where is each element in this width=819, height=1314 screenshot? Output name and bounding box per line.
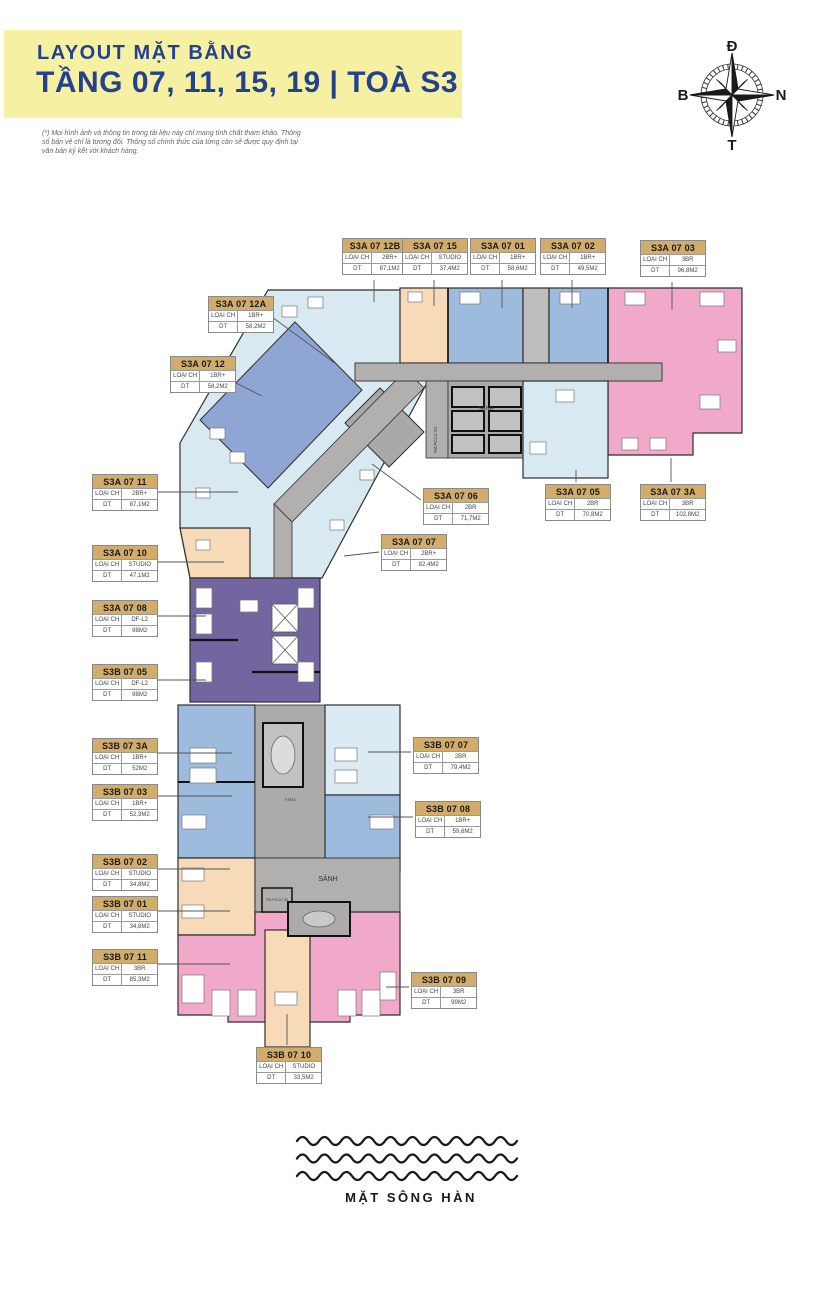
- river-waves: [297, 1137, 517, 1180]
- unit-area-row: DT49,5M2: [541, 263, 605, 274]
- unit-id: S3A 07 01: [471, 239, 535, 252]
- unit-id: S3A 07 12B: [343, 239, 407, 252]
- unit-id: S3B 07 09: [412, 973, 476, 986]
- unit-area-row: DT96,8M2: [641, 265, 705, 276]
- unit-type-row: LOẠI CH3BR: [412, 986, 476, 997]
- label-s3a-07-08: S3A 07 08LOẠI CHDF-L2DT98M2: [92, 600, 158, 637]
- label-s3a-07-07: S3A 07 07LOẠI CH2BR+DT82,4M2: [381, 534, 447, 571]
- unit-s3a-01: [448, 288, 523, 363]
- unit-id: S3B 07 03: [93, 785, 157, 798]
- label-s3b-07-11: S3B 07 11LOẠI CH3BRDT85,3M2: [92, 949, 158, 986]
- label-s3b-07-05: S3B 07 05LOẠI CHDF-L2DT98M2: [92, 664, 158, 701]
- label-s3a-07-3a: S3A 07 3ALOẠI CH3BRDT102,8M2: [640, 484, 706, 521]
- unit-area-row: DT102,8M2: [641, 509, 705, 520]
- unit-id: S3B 07 11: [93, 950, 157, 963]
- unit-type-row: LOẠI CH2BR+: [343, 252, 407, 263]
- unit-id: S3B 07 08: [416, 802, 480, 815]
- unit-type-row: LOẠI CH1BR+: [93, 752, 157, 763]
- unit-type-row: LOẠI CHDF-L2: [93, 678, 157, 689]
- unit-id: S3A 07 15: [403, 239, 467, 252]
- label-s3b-07-08: S3B 07 08LOẠI CH1BR+DT59,6M2: [415, 801, 481, 838]
- label-s3b-07-02: S3B 07 02LOẠI CHSTUDIODT34,8M2: [92, 854, 158, 891]
- unit-type-row: LOẠI CHSTUDIO: [93, 910, 157, 921]
- compass: Đ B N T: [678, 38, 787, 154]
- unit-area-row: DT98M2: [93, 625, 157, 636]
- unit-area-row: DT70,8M2: [546, 509, 610, 520]
- unit-type-row: LOẠI CH2BR: [546, 498, 610, 509]
- unit-area-row: DT79,4M2: [414, 762, 478, 773]
- title-banner: LAYOUT MẶT BẰNG TẦNG 07, 11, 15, 19 | TO…: [4, 30, 462, 118]
- trash-room-label: F.RÁC: [285, 797, 297, 802]
- label-s3a-07-12a: S3A 07 12ALOẠI CH1BR+DT58,2M2: [208, 296, 274, 333]
- label-s3a-07-06: S3A 07 06LOẠI CH2BRDT71,7M2: [423, 488, 489, 525]
- lobby-label-bottom: SẢNH: [318, 874, 337, 883]
- unit-id: S3B 07 05: [93, 665, 157, 678]
- brochure-page: Đ B N T: [0, 0, 819, 1314]
- unit-id: S3B 07 02: [93, 855, 157, 868]
- unit-type-row: LOẠI CH1BR+: [471, 252, 535, 263]
- compass-letter-bottom: T: [727, 137, 736, 154]
- unit-area-row: DT99M2: [412, 997, 476, 1008]
- unit-type-row: LOẠI CH2BR+: [382, 548, 446, 559]
- unit-type-row: LOẠI CHDF-L2: [93, 614, 157, 625]
- unit-type-row: LOẠI CHSTUDIO: [257, 1061, 321, 1072]
- unit-area-row: DT58,6M2: [471, 263, 535, 274]
- label-s3a-07-01: S3A 07 01LOẠI CH1BR+DT58,6M2: [470, 238, 536, 275]
- unit-area-row: DT71,7M2: [424, 513, 488, 524]
- unit-id: S3A 07 07: [382, 535, 446, 548]
- unit-id: S3B 07 07: [414, 738, 478, 751]
- unit-id: S3B 07 01: [93, 897, 157, 910]
- unit-area-row: DT34,8M2: [93, 879, 157, 890]
- unit-area-row: DT82,4M2: [382, 559, 446, 570]
- unit-type-row: LOẠI CH2BR+: [93, 488, 157, 499]
- unit-area-row: DT37,4M2: [403, 263, 467, 274]
- river-label: MẶT SÔNG HÀN: [290, 1190, 532, 1205]
- unit-type-row: LOẠI CHSTUDIO: [93, 559, 157, 570]
- floor-plan: SẢNH TM.PCCC 01 SẢNH TM.PCCC 02 F.RÁC: [178, 288, 742, 1047]
- unit-type-row: LOẠI CH1BR+: [93, 798, 157, 809]
- unit-type-row: LOẠI CH3BR: [641, 498, 705, 509]
- label-s3b-07-01: S3B 07 01LOẠI CHSTUDIODT34,8M2: [92, 896, 158, 933]
- label-s3b-07-07: S3B 07 07LOẠI CH2BRDT79,4M2: [413, 737, 479, 774]
- unit-area-row: DT87,1M2: [343, 263, 407, 274]
- fire-room-label-top: TM.PCCC 01: [433, 426, 438, 453]
- label-s3a-07-10: S3A 07 10LOẠI CHSTUDIODT47,1M2: [92, 545, 158, 582]
- unit-id: S3A 07 03: [641, 241, 705, 254]
- floor-plan-canvas: Đ B N T: [0, 0, 819, 1314]
- unit-id: S3B 07 3A: [93, 739, 157, 752]
- unit-type-row: LOẠI CH2BR: [424, 502, 488, 513]
- label-s3b-07-10: S3B 07 10LOẠI CHSTUDIODT33,5M2: [256, 1047, 322, 1084]
- unit-s3b-10: [265, 930, 310, 1047]
- unit-id: S3A 07 12: [171, 357, 235, 370]
- unit-type-row: LOẠI CH3BR: [641, 254, 705, 265]
- label-s3a-07-15: S3A 07 15LOẠI CHSTUDIODT37,4M2: [402, 238, 468, 275]
- title-line-1: LAYOUT MẶT BẰNG: [37, 42, 253, 65]
- unit-id: S3A 07 02: [541, 239, 605, 252]
- corridor-top: [355, 363, 662, 381]
- unit-area-row: DT59,6M2: [416, 826, 480, 837]
- unit-area-row: DT47,1M2: [93, 570, 157, 581]
- label-s3a-07-12b: S3A 07 12BLOẠI CH2BR+DT87,1M2: [342, 238, 408, 275]
- unit-s3a-15: [400, 288, 448, 363]
- unit-type-row: LOẠI CH1BR+: [209, 310, 273, 321]
- lobby-label-top: SẢNH: [478, 405, 493, 412]
- unit-area-row: DT34,8M2: [93, 921, 157, 932]
- unit-area-row: DT58,2M2: [209, 321, 273, 332]
- unit-type-row: LOẠI CH2BR: [414, 751, 478, 762]
- unit-type-row: LOẠI CHSTUDIO: [93, 868, 157, 879]
- unit-id: S3B 07 10: [257, 1048, 321, 1061]
- unit-area-row: DT52M2: [93, 763, 157, 774]
- disclaimer-text: (*) Mọi hình ảnh và thông tin trong tài …: [42, 129, 310, 156]
- compass-letter-top: Đ: [727, 38, 738, 55]
- unit-id: S3A 07 12A: [209, 297, 273, 310]
- unit-area-row: DT85,3M2: [93, 974, 157, 985]
- unit-type-row: LOẠI CH1BR+: [171, 370, 235, 381]
- unit-id: S3A 07 11: [93, 475, 157, 488]
- title-line-2: TẦNG 07, 11, 15, 19 | TOÀ S3: [36, 66, 458, 100]
- compass-letter-right: N: [776, 87, 787, 104]
- label-s3b-07-03: S3B 07 03LOẠI CH1BR+DT52,3M2: [92, 784, 158, 821]
- label-s3b-07-3a: S3B 07 3ALOẠI CH1BR+DT52M2: [92, 738, 158, 775]
- unit-type-row: LOẠI CH1BR+: [541, 252, 605, 263]
- unit-area-row: DT33,5M2: [257, 1072, 321, 1083]
- label-s3a-07-02: S3A 07 02LOẠI CH1BR+DT49,5M2: [540, 238, 606, 275]
- fire-room-label-bottom: TM.PCCC 02: [266, 898, 289, 902]
- unit-id: S3A 07 3A: [641, 485, 705, 498]
- unit-type-row: LOẠI CH1BR+: [416, 815, 480, 826]
- unit-s3a-10: [180, 528, 250, 578]
- unit-id: S3A 07 06: [424, 489, 488, 502]
- label-s3a-07-05: S3A 07 05LOẠI CH2BRDT70,8M2: [545, 484, 611, 521]
- unit-id: S3A 07 08: [93, 601, 157, 614]
- unit-area-row: DT58,2M2: [171, 381, 235, 392]
- unit-type-row: LOẠI CH3BR: [93, 963, 157, 974]
- compass-letter-left: B: [678, 87, 689, 104]
- label-s3b-07-09: S3B 07 09LOẠI CH3BRDT99M2: [411, 972, 477, 1009]
- unit-area-row: DT52,3M2: [93, 809, 157, 820]
- label-s3a-07-03: S3A 07 03LOẠI CH3BRDT96,8M2: [640, 240, 706, 277]
- unit-area-row: DT98M2: [93, 689, 157, 700]
- unit-id: S3A 07 05: [546, 485, 610, 498]
- label-s3a-07-11: S3A 07 11LOẠI CH2BR+DT87,1M2: [92, 474, 158, 511]
- unit-type-row: LOẠI CHSTUDIO: [403, 252, 467, 263]
- stairs-top: [523, 288, 549, 363]
- label-s3a-07-12: S3A 07 12LOẠI CH1BR+DT58,2M2: [170, 356, 236, 393]
- unit-area-row: DT87,1M2: [93, 499, 157, 510]
- unit-id: S3A 07 10: [93, 546, 157, 559]
